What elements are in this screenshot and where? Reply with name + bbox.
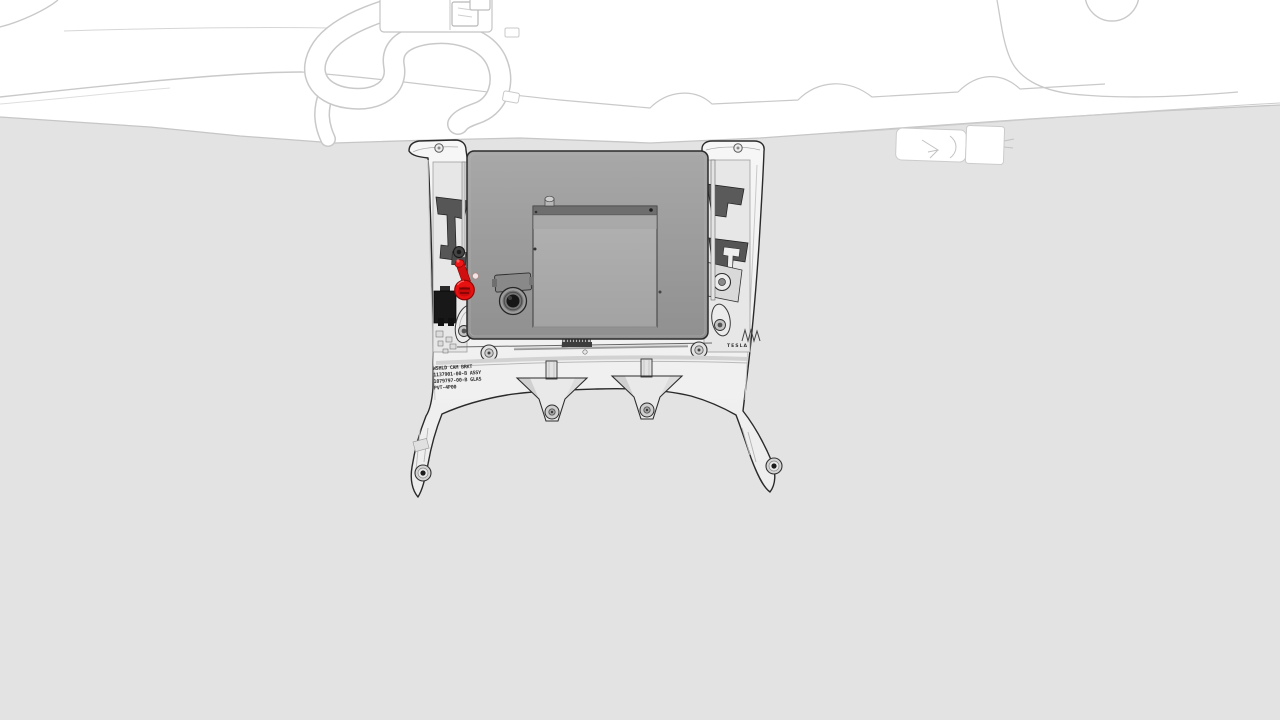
module-lid — [533, 196, 657, 327]
tesla-logo-text: TESLA — [727, 343, 748, 349]
glass-mounted-clip-outline — [895, 125, 1014, 164]
harness-clip — [502, 91, 519, 104]
camera-module-housing — [462, 151, 715, 339]
bolt-washer — [472, 273, 478, 279]
illustration-canvas: TESLA — [0, 0, 1280, 720]
module-side-rod — [711, 160, 715, 300]
roof-connector-bracket-outline — [380, 0, 492, 32]
lid-rivet — [545, 196, 554, 202]
part-label-line4: PVT-4P00 — [434, 384, 457, 391]
lens-aperture — [507, 295, 520, 308]
harness-clip-2 — [505, 28, 519, 37]
service-manual-illustration: TESLA — [0, 0, 1280, 720]
